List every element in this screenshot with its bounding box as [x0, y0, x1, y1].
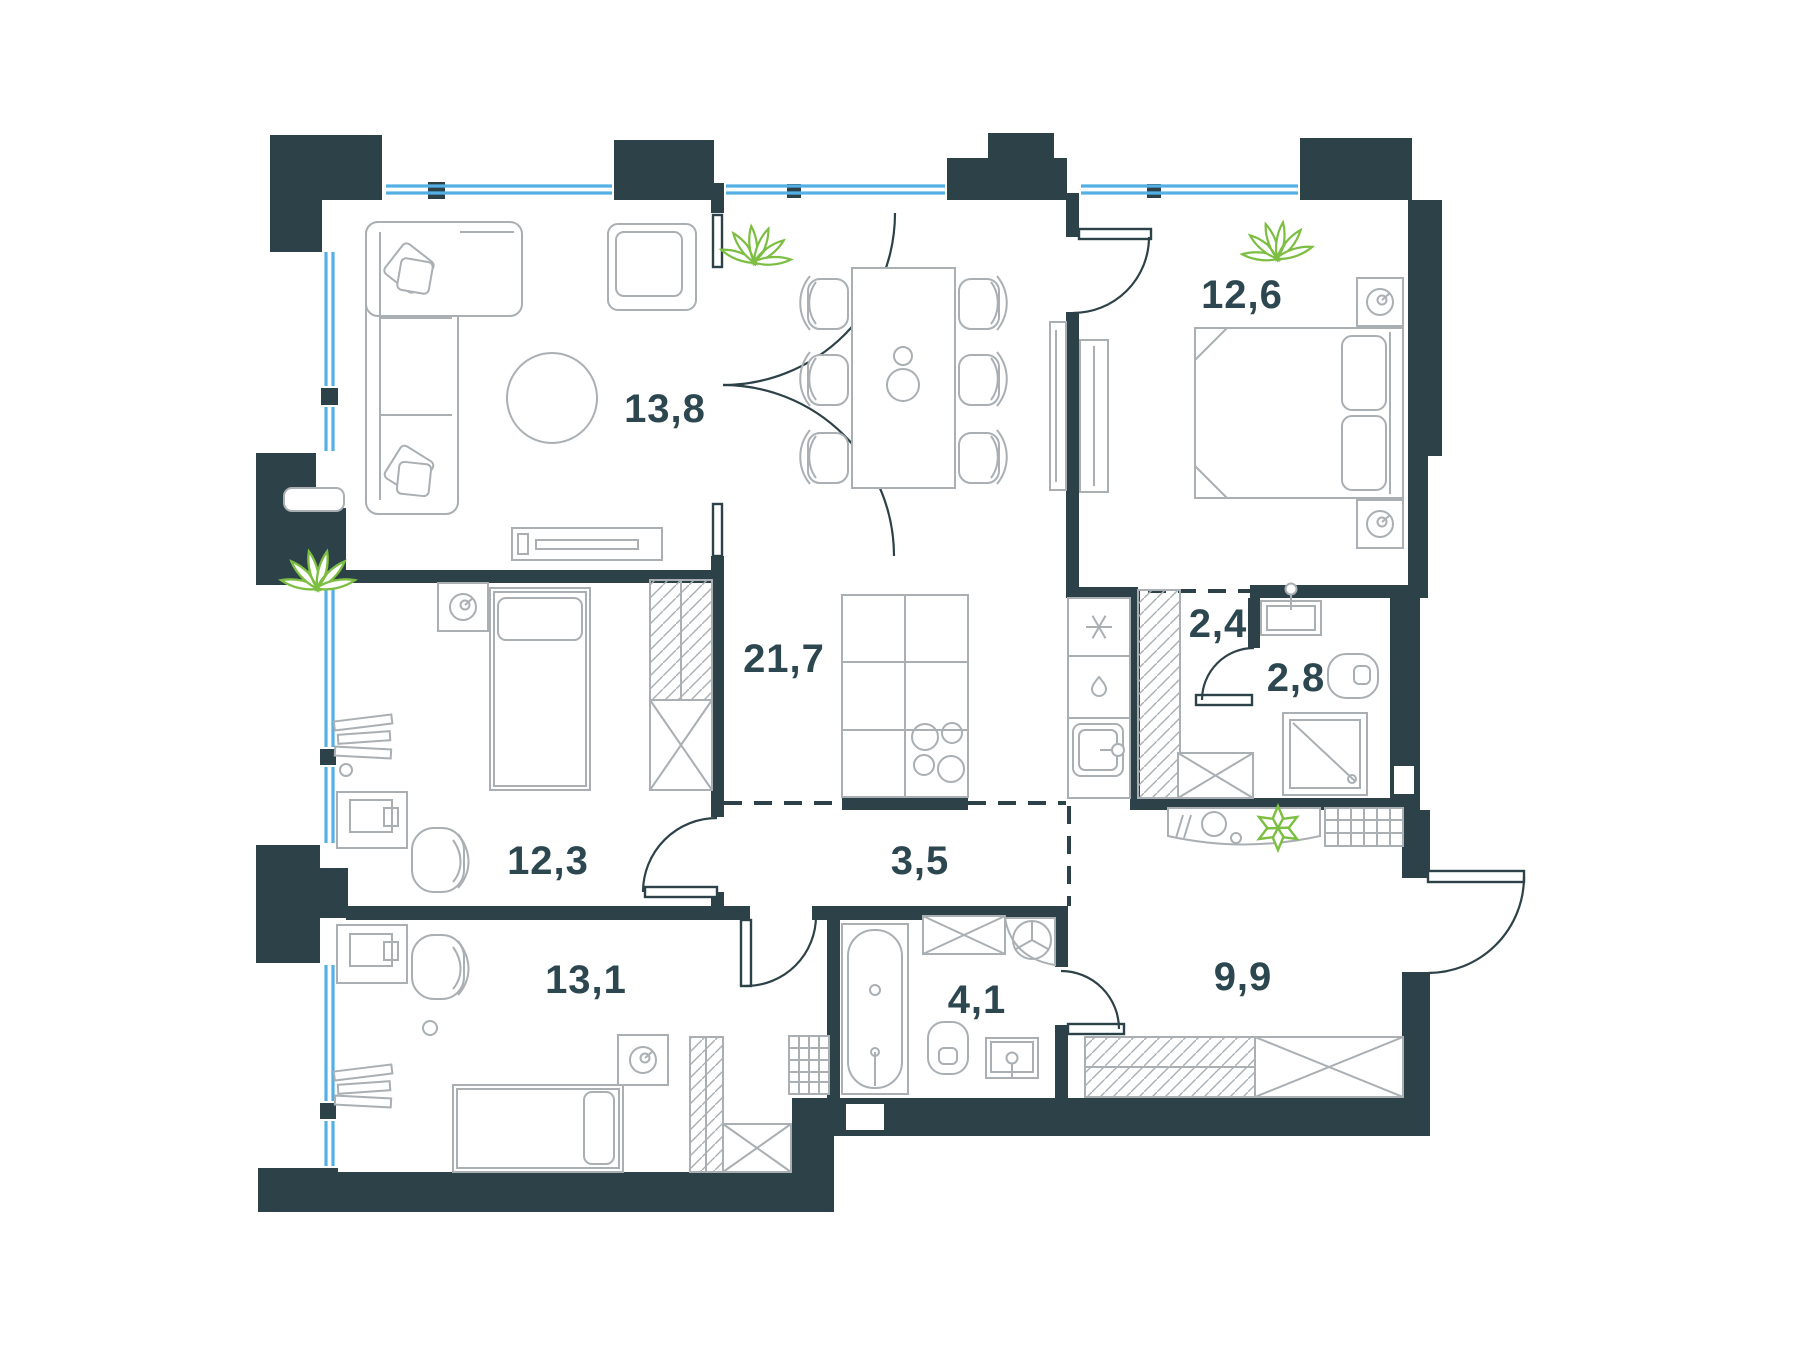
room-label-bath-main: 4,1	[948, 978, 1007, 1022]
toilet	[1328, 654, 1378, 698]
desk-chair	[412, 828, 469, 892]
nightstand	[1357, 500, 1403, 548]
hall-wardrobe	[1085, 1037, 1403, 1097]
room-label-entrance: 9,9	[1214, 955, 1273, 999]
room-label-bedroom-bottom: 13,1	[545, 958, 627, 1002]
plant-icon	[719, 222, 796, 272]
dining-furniture	[800, 268, 1066, 490]
wardrobe	[690, 1037, 791, 1172]
wardrobe	[650, 580, 712, 790]
desk-chair	[412, 935, 469, 999]
desk	[337, 925, 407, 983]
door-bedroom-master	[1073, 229, 1151, 313]
plant-icon	[1238, 219, 1314, 266]
desk	[337, 792, 407, 848]
single-bed	[453, 1085, 623, 1172]
room-label-bedroom-middle: 12,3	[507, 839, 589, 883]
room-label-kitchen: 21,7	[743, 637, 825, 681]
tv-console	[512, 528, 662, 560]
room-label-bedroom-master: 12,6	[1201, 273, 1283, 317]
shower	[1283, 713, 1367, 795]
room-label-bath-small: 2,8	[1267, 656, 1326, 700]
double-bed	[1195, 328, 1403, 498]
sink	[986, 1038, 1038, 1078]
room-label-living: 13,8	[624, 387, 706, 431]
wall-shelves	[334, 1064, 393, 1107]
dining-table	[852, 268, 955, 488]
toilet	[928, 1022, 968, 1074]
bedroom-master-furniture	[1080, 278, 1403, 548]
room-label-corridor: 2,4	[1189, 602, 1248, 646]
wall-shelves	[334, 714, 393, 758]
kitchen-sink	[1073, 724, 1124, 776]
entrance-hall-furniture	[1085, 808, 1403, 1097]
coffee-table	[507, 353, 597, 443]
single-bed	[490, 588, 590, 790]
floor-plan: 13,8 21,7 12,6 2,4 2,8 12,3 3,5 13,1 4,1…	[0, 0, 1800, 1350]
washing-machine	[1005, 918, 1055, 965]
bathtub	[842, 924, 908, 1094]
room-label-hallway: 3,5	[891, 839, 950, 883]
grid-cabinet	[789, 1036, 829, 1094]
door-bathroom-main	[1061, 971, 1124, 1034]
door-bedroom-bottom	[741, 916, 816, 986]
kitchen-furniture	[842, 595, 1130, 798]
door-bedroom-middle	[643, 818, 717, 897]
nightstand	[618, 1035, 668, 1085]
armchair	[608, 224, 696, 310]
hall-mirror	[1050, 322, 1066, 490]
floor-plan-page: 13,8 21,7 12,6 2,4 2,8 12,3 3,5 13,1 4,1…	[0, 0, 1800, 1350]
door-bathroom-small	[1196, 648, 1254, 705]
wall-shelf	[284, 488, 344, 511]
nightstand	[1357, 278, 1403, 326]
faucet-icon	[1112, 744, 1124, 756]
linen-cabinet	[1178, 753, 1253, 798]
wardrobe	[1080, 340, 1108, 492]
doormat	[1325, 808, 1403, 846]
entrance-door	[1428, 871, 1524, 973]
shelf-unit	[923, 916, 1005, 954]
nightstand	[438, 583, 488, 631]
